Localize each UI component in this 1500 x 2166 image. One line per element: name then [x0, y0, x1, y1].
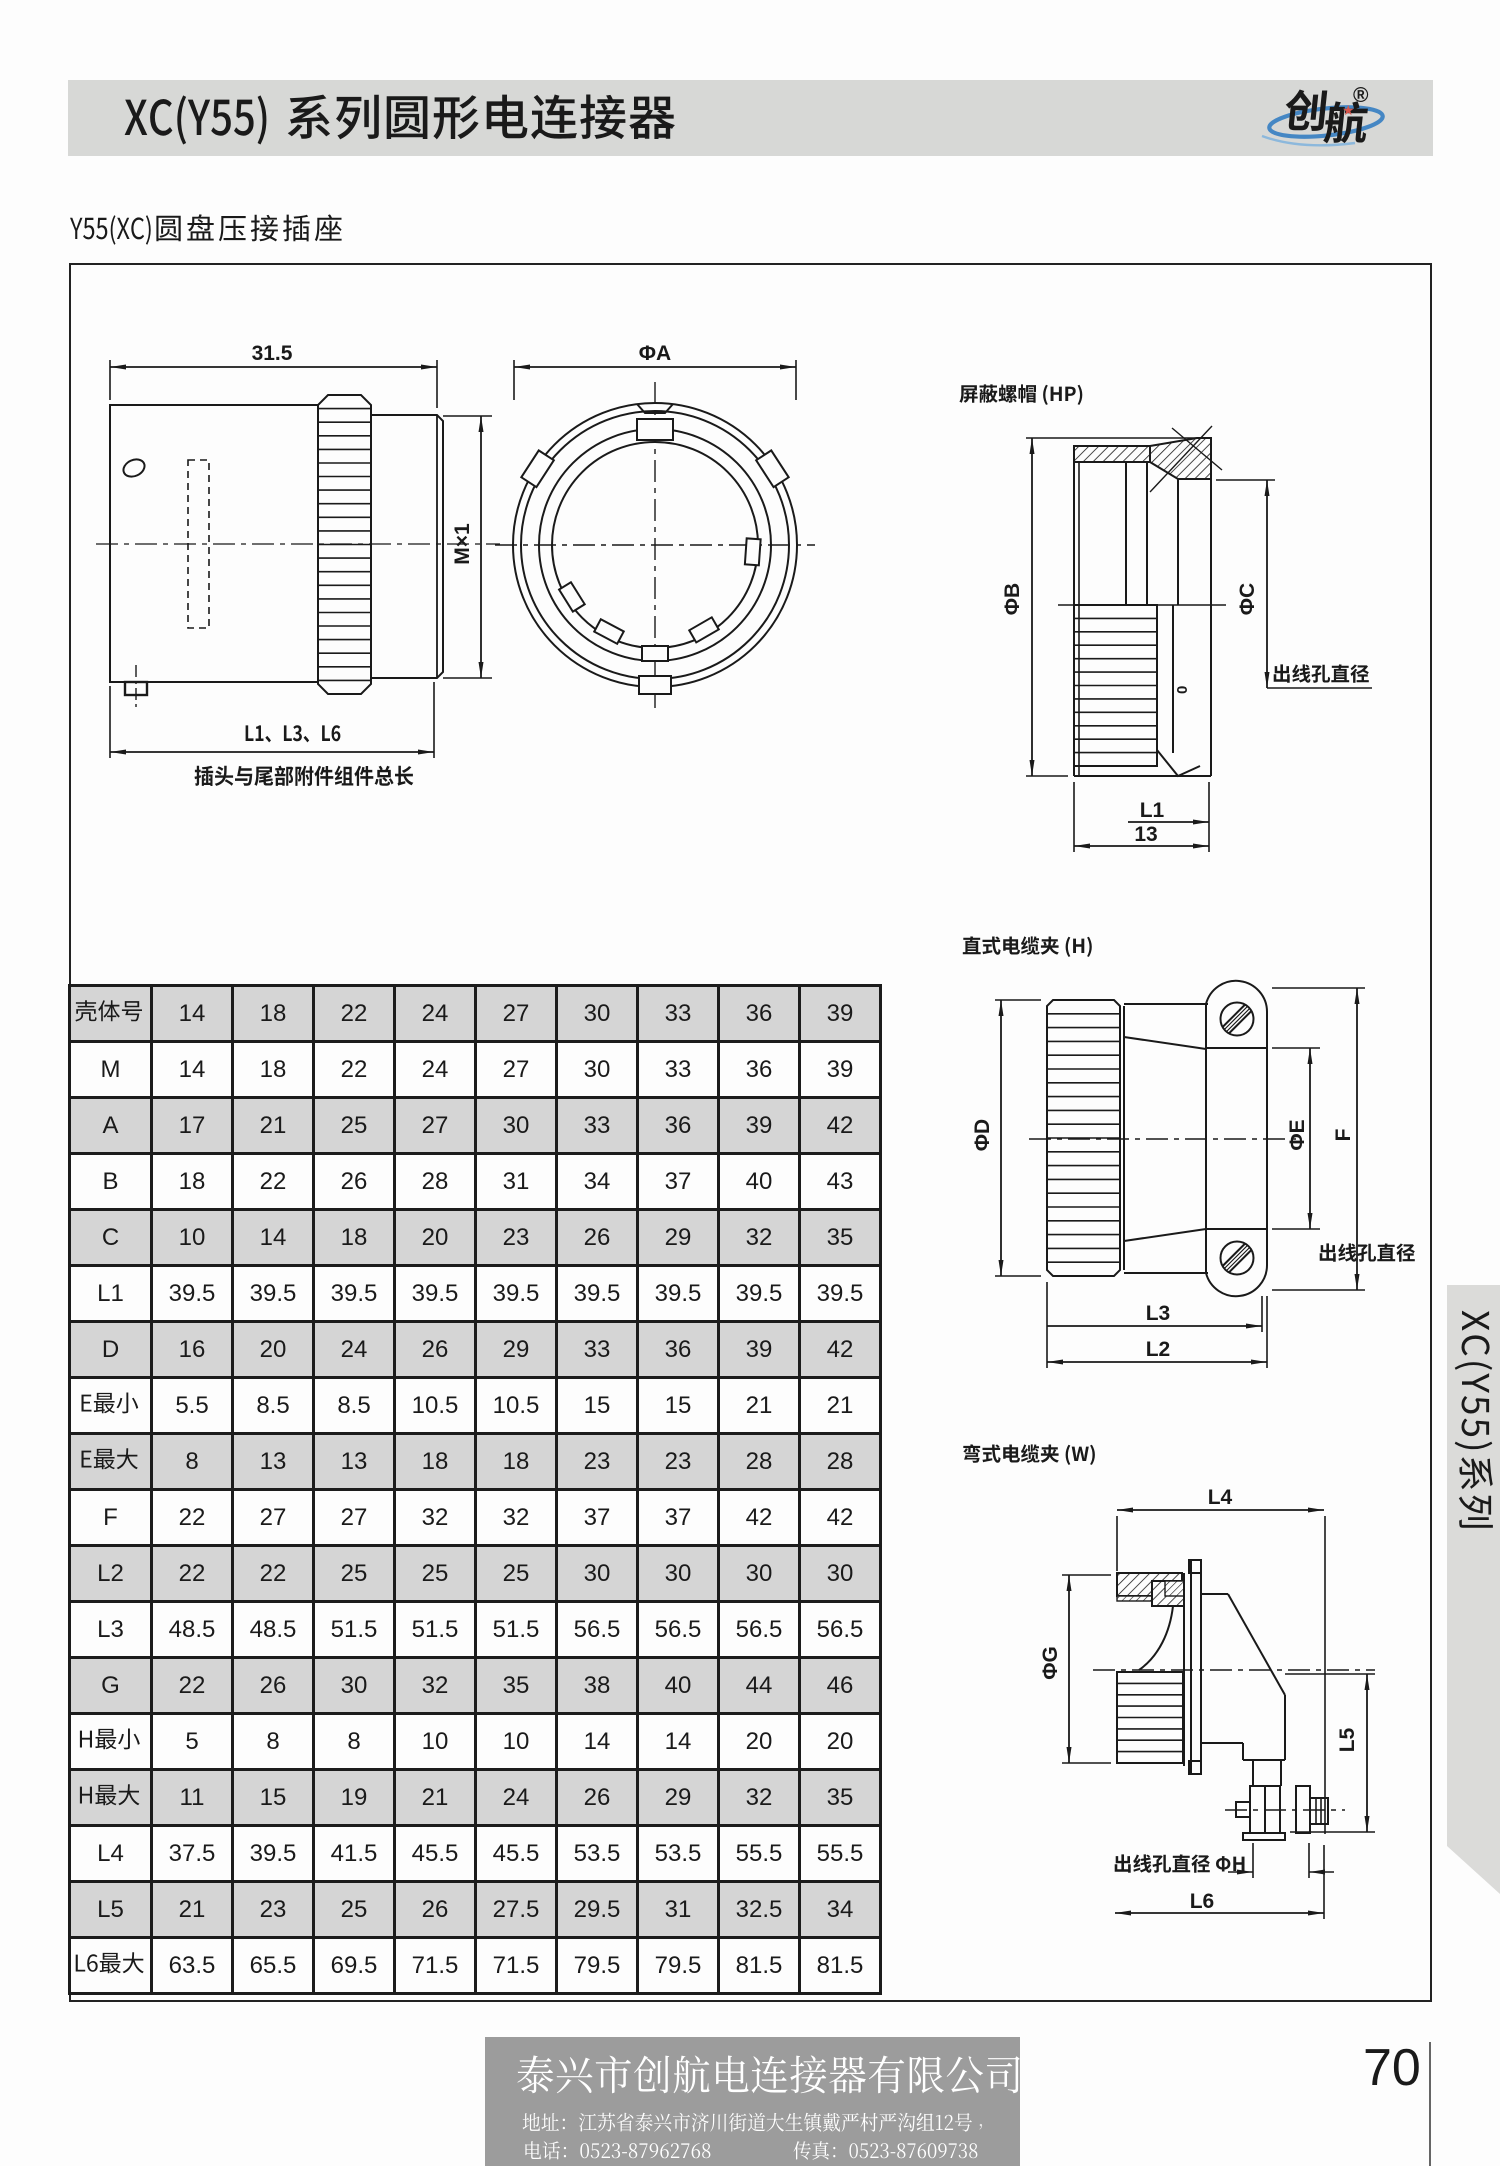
- svg-text:ΦE: ΦE: [1286, 1119, 1309, 1150]
- svg-text:L5: L5: [1336, 1727, 1359, 1752]
- svg-text:0: 0: [1174, 686, 1191, 694]
- svg-text:M×1: M×1: [451, 523, 474, 565]
- svg-text:L2: L2: [1146, 1338, 1171, 1361]
- svg-text:ΦB: ΦB: [1001, 583, 1024, 615]
- svg-text:ΦD: ΦD: [971, 1119, 994, 1151]
- svg-text:ΦA: ΦA: [639, 342, 671, 365]
- svg-text:ΦC: ΦC: [1236, 583, 1259, 615]
- svg-text:L1: L1: [1140, 799, 1165, 822]
- svg-text:31.5: 31.5: [252, 342, 293, 365]
- svg-text:L4: L4: [1208, 1486, 1233, 1509]
- svg-text:®: ®: [1353, 84, 1369, 107]
- svg-text:L3: L3: [1146, 1302, 1171, 1325]
- svg-text:F: F: [1332, 1128, 1355, 1141]
- svg-text:13: 13: [1134, 823, 1157, 846]
- svg-text:★: ★: [1342, 102, 1355, 118]
- svg-text:L6: L6: [1190, 1890, 1215, 1913]
- svg-text:ΦG: ΦG: [1039, 1646, 1062, 1680]
